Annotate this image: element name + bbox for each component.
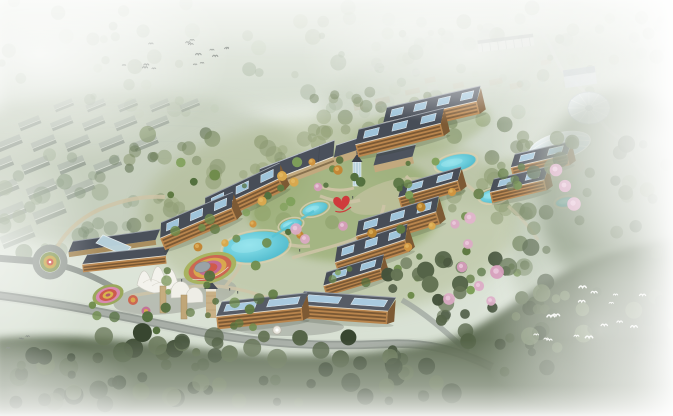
campus-aerial-rendering xyxy=(0,0,673,416)
aerial-rendering-canvas xyxy=(0,0,673,416)
plaza-fountain xyxy=(273,326,281,334)
